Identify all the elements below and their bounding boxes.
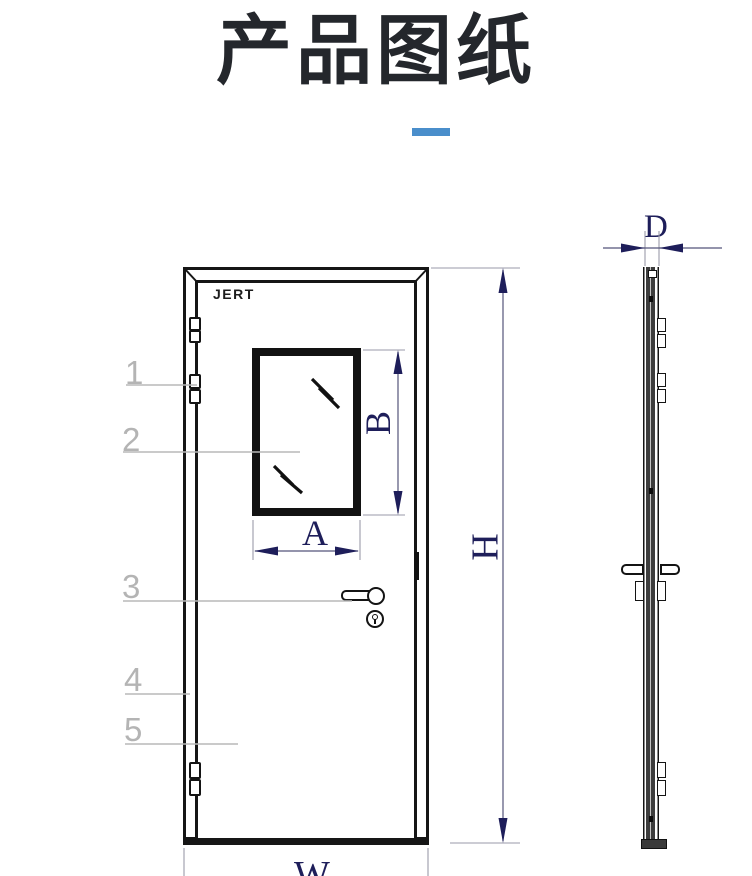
door-window [252, 348, 361, 516]
callout-3: 3 [122, 570, 140, 603]
side-hinge-middle-lower [657, 389, 666, 403]
frame-foot-right [416, 837, 429, 845]
frame-foot-left [184, 837, 197, 845]
dim-label-window-height: B [360, 411, 396, 435]
side-handle-right [660, 564, 680, 575]
keyhole-slot [374, 619, 376, 624]
title-accent-dash [412, 128, 450, 136]
profile-detail-dot [649, 488, 653, 494]
hinge-top-upper [189, 317, 201, 331]
hinge-middle-lower [189, 389, 201, 404]
page-title: 产品图纸 [0, 8, 752, 95]
callout-5: 5 [124, 713, 142, 746]
side-escutcheon-right [657, 581, 666, 601]
dim-label-thickness: D [644, 211, 668, 244]
hinge-bottom-lower [189, 779, 201, 796]
callout-2: 2 [122, 423, 140, 456]
dim-label-window-width: A [302, 515, 328, 551]
profile-top-notch [648, 270, 657, 278]
lock-latch [414, 552, 419, 580]
side-hinge-bottom-upper [657, 762, 666, 778]
side-hinge-top-lower [657, 334, 666, 348]
profile-foot [641, 839, 667, 849]
side-view-profile [643, 267, 659, 845]
callout-1: 1 [125, 356, 143, 389]
hinge-top-lower [189, 330, 201, 343]
callout-4: 4 [124, 663, 142, 696]
dim-label-door-width: W [294, 856, 330, 876]
side-handle-left [621, 564, 644, 575]
drawing-canvas: 产品图纸 JERT 1 2 3 4 5 A B H W D [0, 0, 752, 876]
hinge-middle-upper [189, 374, 201, 389]
side-hinge-top-upper [657, 318, 666, 332]
profile-detail-dot [649, 296, 653, 302]
profile-detail-dot [649, 816, 653, 822]
side-escutcheon-left [635, 581, 644, 601]
door-handle-rosette [367, 587, 385, 605]
brand-logo: JERT [213, 286, 255, 302]
dim-label-door-height: H [467, 533, 505, 560]
hinge-bottom-upper [189, 762, 201, 779]
side-hinge-bottom-lower [657, 780, 666, 796]
side-hinge-middle-upper [657, 373, 666, 387]
